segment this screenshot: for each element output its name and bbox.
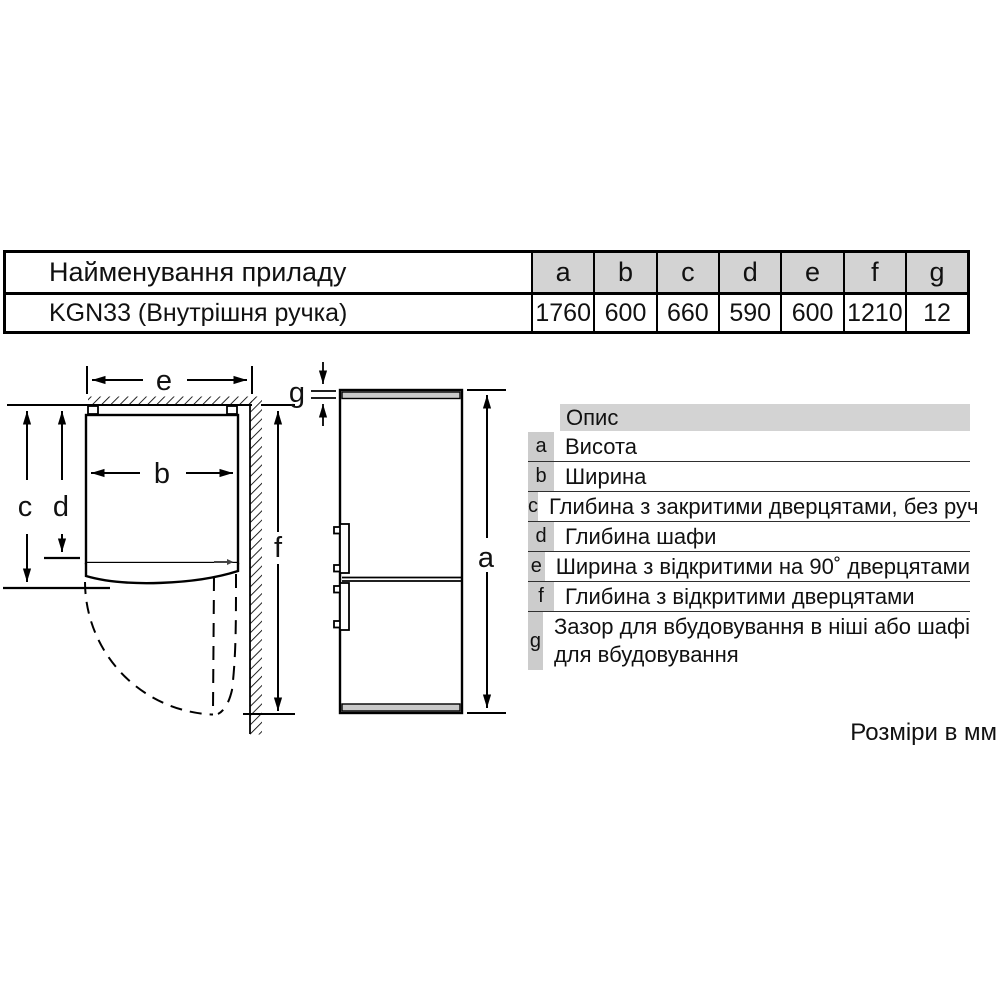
legend-row-d: d Глибина шафи [528, 522, 970, 552]
legend-key: d [528, 522, 554, 551]
dim-header-d: d [719, 252, 781, 294]
label-g: g [289, 377, 305, 409]
legend-key: f [528, 582, 554, 611]
label-d: d [53, 491, 69, 523]
legend-key: b [528, 462, 554, 491]
units-note: Розміри в мм [850, 719, 997, 747]
wall-hatch-side [250, 397, 262, 735]
top-trim-strip [342, 392, 460, 399]
fridge-top-view-body [86, 415, 238, 583]
model-name: KGN33 (Внутрішня ручка) [5, 294, 533, 333]
spec-name-header: Найменування приладу [5, 252, 533, 294]
legend-desc: Ширина з відкритими на 90˚ дверцятами [556, 553, 970, 581]
spec-table: Найменування приладу a b c d e f g KGN33… [3, 250, 970, 334]
lower-door-handle [334, 583, 349, 630]
legend-desc: Глибина з закритими дверцятами, без руч [549, 493, 978, 521]
upper-door-handle [334, 524, 349, 573]
dim-header-c: c [657, 252, 719, 294]
dim-value-d: 590 [719, 294, 781, 333]
label-e: e [156, 365, 172, 397]
bottom-plinth-strip [342, 704, 460, 711]
legend-row-c: c Глибина з закритими дверцятами, без ру… [528, 492, 970, 522]
legend-desc: Глибина з відкритими дверцятами [565, 583, 915, 611]
legend-row-b: b Ширина [528, 462, 970, 492]
spec-table-value-row: KGN33 (Внутрішня ручка) 1760 600 660 590… [5, 294, 969, 333]
rear-spacer-pins [88, 406, 237, 414]
open-door-edge-left [213, 577, 214, 711]
legend-desc: Глибина шафи [565, 523, 716, 551]
fridge-top-view-door [86, 563, 238, 583]
dim-value-b: 600 [594, 294, 656, 333]
label-a: a [478, 542, 495, 574]
top-view-diagram: e b c d f [3, 365, 295, 735]
dimension-c: c [18, 411, 33, 582]
dim-header-a: a [532, 252, 594, 294]
legend-desc-line1: Зазор для вбудовування в ніші або шафі [554, 613, 970, 641]
legend-key: e [528, 552, 545, 581]
dimension-a: a [467, 390, 506, 713]
dim-value-c: 660 [657, 294, 719, 333]
legend-row-g: g Зазор для вбудовування в ніші або шафі… [528, 612, 970, 670]
legend-header: Опис [560, 404, 970, 431]
spec-table-header-row: Найменування приладу a b c d e f g [5, 252, 969, 294]
legend-header-row: Опис [528, 404, 970, 431]
legend-row-a: a Висота [528, 432, 970, 462]
label-c: c [18, 491, 33, 523]
door-swing-arc [85, 582, 213, 715]
legend-desc: Висота [565, 433, 637, 461]
legend-desc-line2: для вбудовування [554, 641, 970, 669]
fridge-front-view-body [334, 390, 462, 713]
dim-value-f: 1210 [844, 294, 906, 333]
open-door-edge-right [218, 574, 236, 714]
dim-header-e: e [781, 252, 843, 294]
legend-header-spacer [528, 404, 560, 431]
dimension-diagram: e b c d f [0, 350, 520, 760]
dim-value-g: 12 [906, 294, 968, 333]
legend-table: Опис a Висота b Ширина c Глибина з закри… [528, 404, 970, 670]
dimension-e: e [87, 365, 252, 397]
dim-header-g: g [906, 252, 968, 294]
front-view-diagram: g a [289, 362, 506, 713]
dim-value-e: 600 [781, 294, 843, 333]
dimension-g: g [289, 362, 336, 426]
legend-key: g [528, 612, 543, 670]
legend-desc: Ширина [565, 463, 646, 491]
door-swing-dashed [85, 574, 236, 715]
legend-row-e: e Ширина з відкритими на 90˚ дверцятами [528, 552, 970, 582]
dim-header-b: b [594, 252, 656, 294]
dim-header-f: f [844, 252, 906, 294]
legend-row-f: f Глибина з відкритими дверцятами [528, 582, 970, 612]
label-b: b [154, 458, 170, 490]
legend-key: c [528, 492, 538, 521]
label-f: f [274, 532, 283, 564]
legend-key: a [528, 432, 554, 461]
dimension-d: d [53, 411, 69, 552]
dim-value-a: 1760 [532, 294, 594, 333]
